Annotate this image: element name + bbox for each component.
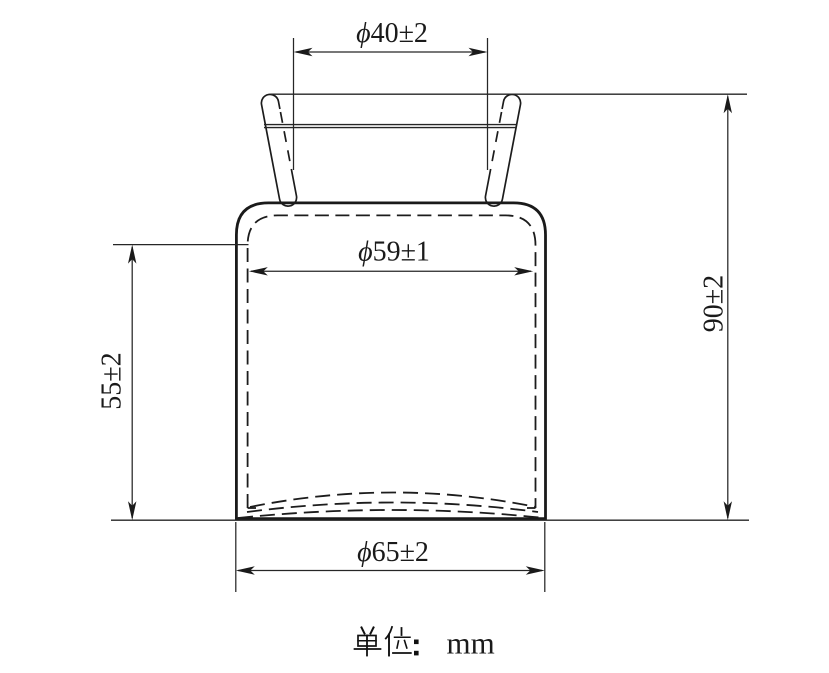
svg-text:90±2: 90±2 [699,275,730,332]
svg-text:ϕ59±1: ϕ59±1 [358,237,430,268]
svg-text:ϕ40±2: ϕ40±2 [356,18,428,49]
svg-text:ϕ65±2: ϕ65±2 [357,537,429,568]
svg-text:mm: mm [447,626,495,661]
svg-text:55±2: 55±2 [97,352,128,409]
